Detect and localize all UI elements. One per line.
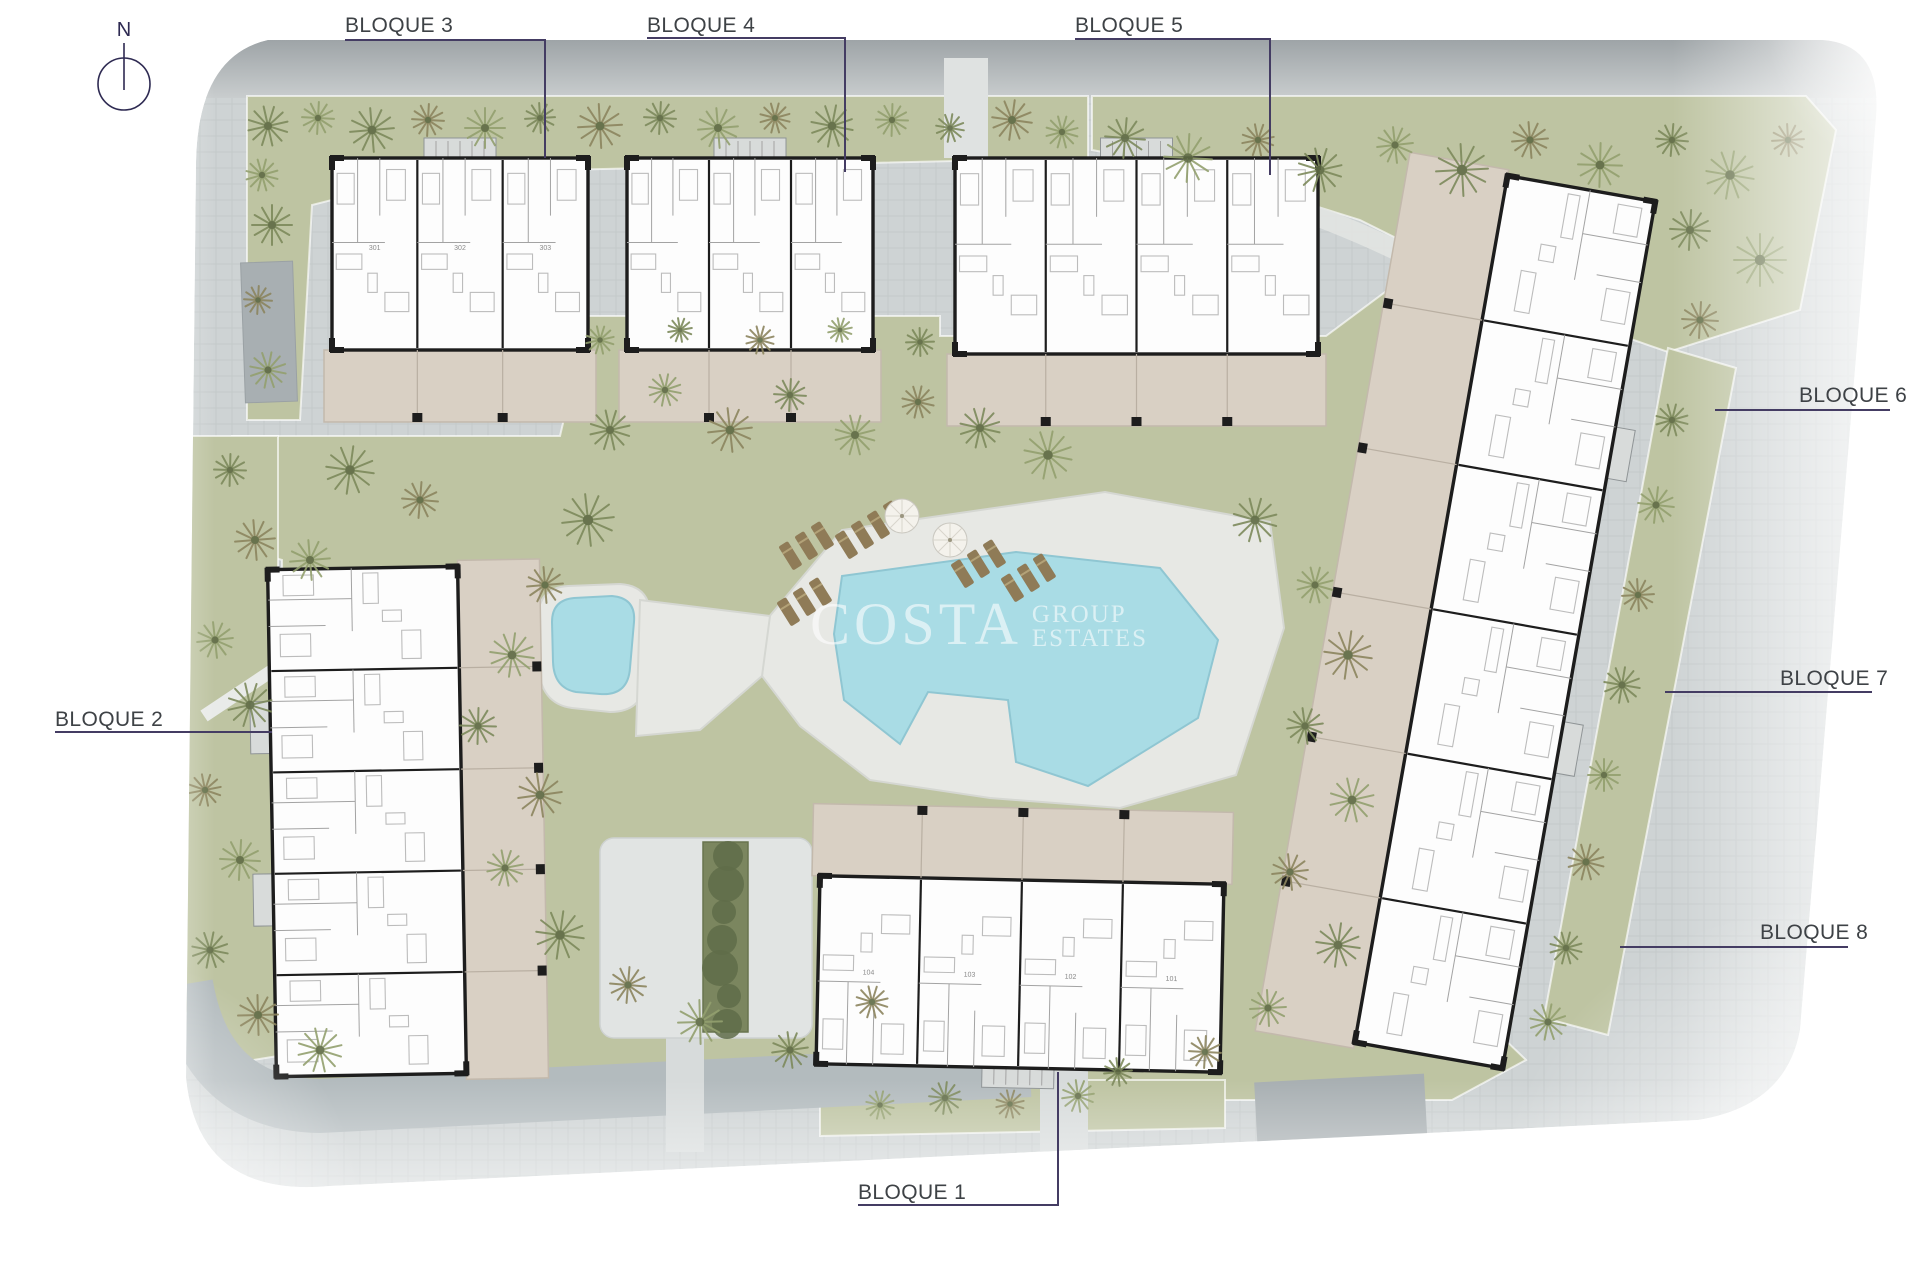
bloque-3-label: BLOQUE 3 — [345, 14, 453, 38]
bloque-2-label: BLOQUE 2 — [55, 708, 163, 732]
site-plan: 301302303104103102101 N BLOQUE 1 — [0, 0, 1920, 1280]
bloque-6-label: BLOQUE 6 — [1799, 384, 1907, 408]
bloque-7-label: BLOQUE 7 — [1780, 667, 1888, 691]
bloque-1-label: BLOQUE 1 — [858, 1181, 966, 1205]
bloque-5-label: BLOQUE 5 — [1075, 14, 1183, 38]
bloque-3-leader — [345, 40, 545, 158]
bloque-4-leader — [647, 38, 845, 172]
bloque-4-label: BLOQUE 4 — [647, 14, 755, 38]
bloque-8-label: BLOQUE 8 — [1760, 921, 1868, 945]
annotation-overlay: N — [0, 0, 1920, 1280]
bloque-5-leader — [1075, 39, 1270, 175]
compass-north-letter: N — [117, 19, 131, 41]
north-compass: N — [98, 19, 150, 110]
